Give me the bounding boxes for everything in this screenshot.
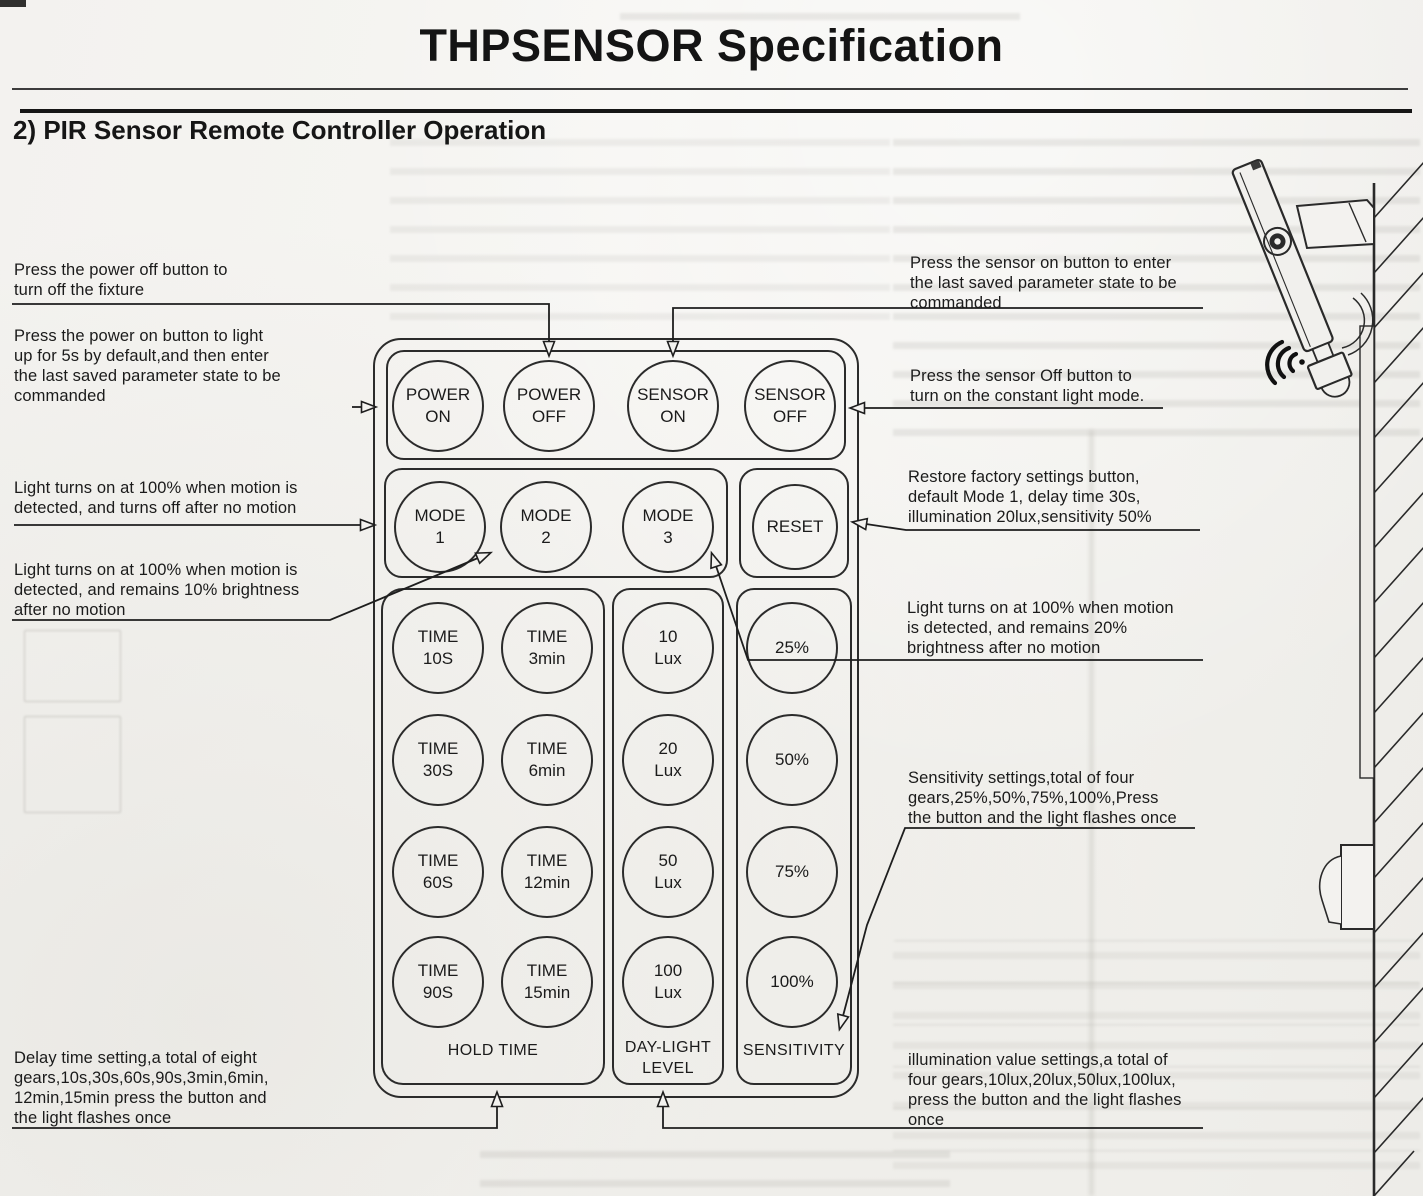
button-label: Lux <box>654 872 681 894</box>
annotation-illumination: illumination value settings,a total of f… <box>908 1050 1181 1130</box>
button-label: TIME <box>527 960 568 982</box>
time-90s-button: TIME 90S <box>392 936 484 1028</box>
annotation-sensitivity: Sensitivity settings,total of four gears… <box>908 768 1177 828</box>
button-label: 90S <box>423 982 453 1004</box>
time-30s-button: TIME 30S <box>392 714 484 806</box>
power-on-button: POWER ON <box>392 360 484 452</box>
button-label: 20 <box>659 738 678 760</box>
button-label: 2 <box>541 527 550 549</box>
button-label: TIME <box>418 960 459 982</box>
bracket-flag <box>1320 856 1341 924</box>
lux-100-button: 100 Lux <box>622 936 714 1028</box>
button-label: 100% <box>770 971 813 993</box>
button-label: MODE <box>643 505 694 527</box>
power-off-button: POWER OFF <box>503 360 595 452</box>
button-label: SENSOR <box>754 384 826 406</box>
time-12min-button: TIME 12min <box>501 826 593 918</box>
bleed-through-figure <box>24 630 121 702</box>
button-label: 30S <box>423 760 453 782</box>
button-label: 6min <box>529 760 566 782</box>
daylight-level-label: DAY-LIGHT LEVEL <box>612 1037 724 1079</box>
button-label: 10S <box>423 648 453 670</box>
time-15min-button: TIME 15min <box>501 936 593 1028</box>
button-label: 50% <box>775 749 809 771</box>
button-label: 60S <box>423 872 453 894</box>
annotation-mode-1: Light turns on at 100% when motion is de… <box>14 478 297 518</box>
button-label: 10 <box>659 626 678 648</box>
bleed-through <box>390 128 890 326</box>
annotation-power-on: Press the power on button to light up fo… <box>14 326 281 406</box>
annotation-reset: Restore factory settings button, default… <box>908 467 1152 527</box>
time-10s-button: TIME 10S <box>392 602 484 694</box>
button-label: POWER <box>406 384 470 406</box>
button-label: OFF <box>773 406 807 428</box>
annotation-mode-2: Light turns on at 100% when motion is de… <box>14 560 299 620</box>
button-label: 15min <box>524 982 570 1004</box>
bleed-through <box>480 1140 950 1192</box>
button-label: Lux <box>654 982 681 1004</box>
sensitivity-label: SENSITIVITY <box>734 1040 854 1061</box>
mode-3-button: MODE 3 <box>622 481 714 573</box>
button-label: 100 <box>654 960 682 982</box>
page-title: THPSENSOR Specification <box>0 20 1423 72</box>
annotation-sensor-off: Press the sensor Off button to turn on t… <box>910 366 1144 406</box>
sensitivity-100-button: 100% <box>746 936 838 1028</box>
button-label: SENSOR <box>637 384 709 406</box>
button-label: RESET <box>767 516 824 538</box>
time-60s-button: TIME 60S <box>392 826 484 918</box>
annotation-mode-3: Light turns on at 100% when motion is de… <box>907 598 1174 658</box>
button-label: ON <box>660 406 686 428</box>
scan-artifact <box>0 0 26 7</box>
button-label: TIME <box>418 738 459 760</box>
button-label: 1 <box>435 527 444 549</box>
button-label: 25% <box>775 637 809 659</box>
sensor-off-button: SENSOR OFF <box>744 360 836 452</box>
button-label: 12min <box>524 872 570 894</box>
mode-1-button: MODE 1 <box>394 481 486 573</box>
button-label: POWER <box>517 384 581 406</box>
button-label: OFF <box>532 406 566 428</box>
annotation-delay-time: Delay time setting,a total of eight gear… <box>14 1048 269 1128</box>
annotation-sensor-on: Press the sensor on button to enter the … <box>910 253 1177 313</box>
time-3min-button: TIME 3min <box>501 602 593 694</box>
annotation-power-off: Press the power off button to turn off t… <box>14 260 228 300</box>
bleed-through-figure <box>24 716 121 813</box>
button-label: Lux <box>654 648 681 670</box>
sensitivity-25-button: 25% <box>746 602 838 694</box>
button-label: 3min <box>529 648 566 670</box>
lux-20-button: 20 Lux <box>622 714 714 806</box>
time-6min-button: TIME 6min <box>501 714 593 806</box>
mode-2-button: MODE 2 <box>500 481 592 573</box>
sensor-on-button: SENSOR ON <box>627 360 719 452</box>
button-label: TIME <box>527 738 568 760</box>
lux-10-button: 10 Lux <box>622 602 714 694</box>
header-rule-thin <box>12 88 1408 90</box>
button-label: TIME <box>418 850 459 872</box>
button-label: 3 <box>663 527 672 549</box>
lux-50-button: 50 Lux <box>622 826 714 918</box>
reset-button: RESET <box>752 484 838 570</box>
wall-bracket <box>1341 845 1374 929</box>
button-label: ON <box>425 406 451 428</box>
button-label: MODE <box>521 505 572 527</box>
section-heading: 2) PIR Sensor Remote Controller Operatio… <box>13 115 546 146</box>
button-label: MODE <box>415 505 466 527</box>
button-label: TIME <box>527 850 568 872</box>
button-label: 50 <box>659 850 678 872</box>
hold-time-label: HOLD TIME <box>393 1040 593 1061</box>
header-rule-thick <box>20 109 1412 113</box>
scanned-specification-page: POWER ON POWER OFF SENSOR ON SENSOR OFF … <box>0 0 1423 1196</box>
button-label: Lux <box>654 760 681 782</box>
button-label: TIME <box>527 626 568 648</box>
sensitivity-75-button: 75% <box>746 826 838 918</box>
sensitivity-50-button: 50% <box>746 714 838 806</box>
button-label: TIME <box>418 626 459 648</box>
button-label: 75% <box>775 861 809 883</box>
